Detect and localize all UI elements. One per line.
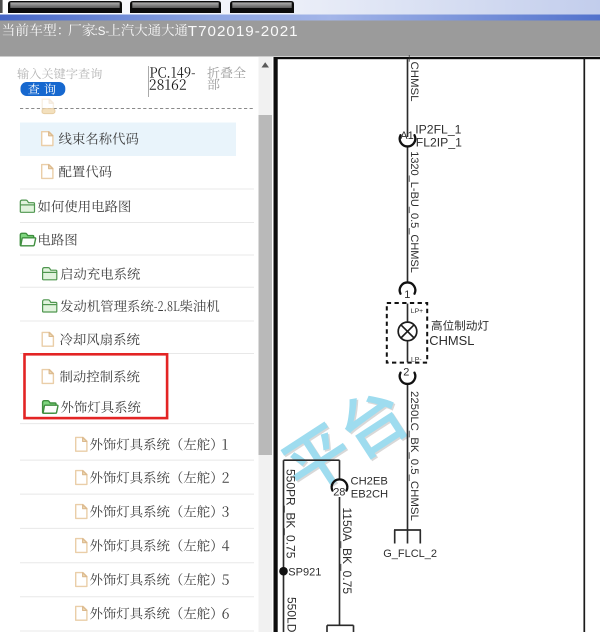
svg-text:_CHMSL: _CHMSL (408, 54, 420, 101)
svg-text:G_FLCL_2: G_FLCL_2 (383, 548, 437, 560)
svg-text:EB2CH: EB2CH (351, 488, 388, 500)
svg-text:1: 1 (404, 289, 410, 301)
svg-text:2: 2 (403, 366, 409, 378)
svg-text:2250LC_BK_0.5_CHMSL: 2250LC_BK_0.5_CHMSL (408, 391, 420, 521)
svg-text:IP2FL_1: IP2FL_1 (415, 123, 461, 137)
svg-text:CH2EB: CH2EB (351, 476, 388, 488)
svg-text:T702019-2021: T702019-2021 (188, 23, 299, 40)
svg-text:550LD_RD_0.5: 550LD_RD_0.5 (284, 597, 298, 632)
svg-text:A1: A1 (400, 130, 413, 142)
svg-text:LP+: LP+ (411, 308, 423, 315)
svg-text:1320_L-BU_0.5_CHMSL: 1320_L-BU_0.5_CHMSL (408, 151, 420, 273)
svg-text:28: 28 (333, 487, 345, 499)
svg-text:550PR_BK_0.75: 550PR_BK_0.75 (284, 469, 298, 559)
svg-text:1150A_BK_0.75: 1150A_BK_0.75 (340, 508, 354, 595)
svg-text:SP921: SP921 (288, 567, 321, 579)
svg-text:LP-: LP- (411, 356, 422, 363)
svg-text:FL2IP_1: FL2IP_1 (416, 136, 462, 150)
svg-text:CHMSL: CHMSL (429, 333, 474, 348)
svg-text::S-: :S- (95, 26, 110, 38)
